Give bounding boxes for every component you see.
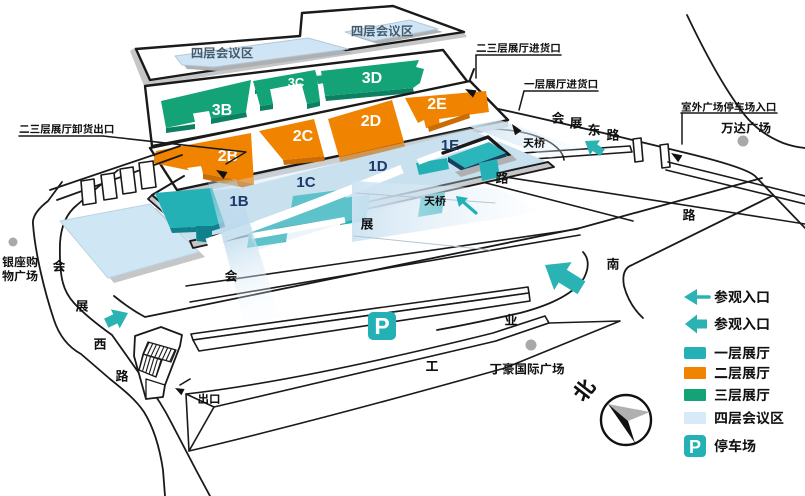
svg-text:2D: 2D bbox=[361, 113, 381, 130]
svg-text:3C: 3C bbox=[288, 75, 305, 90]
svg-text:3D: 3D bbox=[362, 70, 382, 87]
svg-text:1B: 1B bbox=[229, 193, 248, 210]
svg-text:1D: 1D bbox=[368, 158, 387, 175]
svg-text:3B: 3B bbox=[212, 102, 232, 119]
svg-text:P: P bbox=[689, 437, 701, 457]
svg-text:2E: 2E bbox=[427, 96, 447, 113]
svg-text:2C: 2C bbox=[293, 128, 314, 145]
svg-text:P: P bbox=[374, 313, 389, 339]
svg-text:1E: 1E bbox=[441, 137, 459, 154]
svg-text:1C: 1C bbox=[296, 174, 315, 191]
